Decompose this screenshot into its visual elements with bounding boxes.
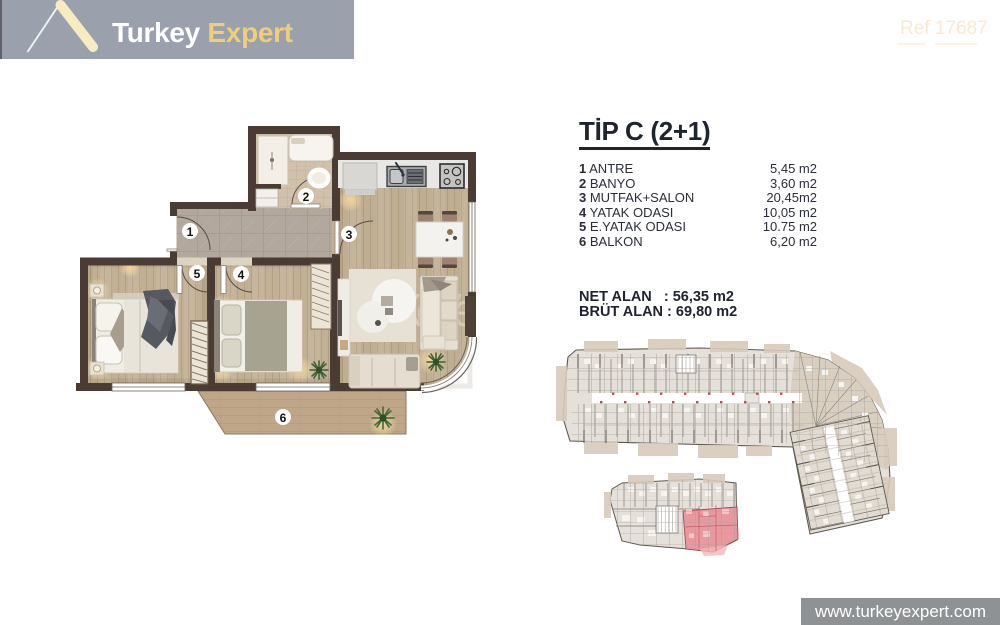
svg-text:3: 3 bbox=[346, 228, 353, 242]
svg-text:5: 5 bbox=[194, 267, 201, 281]
svg-text:4: 4 bbox=[238, 268, 245, 282]
svg-text:1: 1 bbox=[187, 225, 194, 239]
svg-text:6: 6 bbox=[280, 411, 287, 425]
svg-text:2: 2 bbox=[303, 190, 310, 204]
